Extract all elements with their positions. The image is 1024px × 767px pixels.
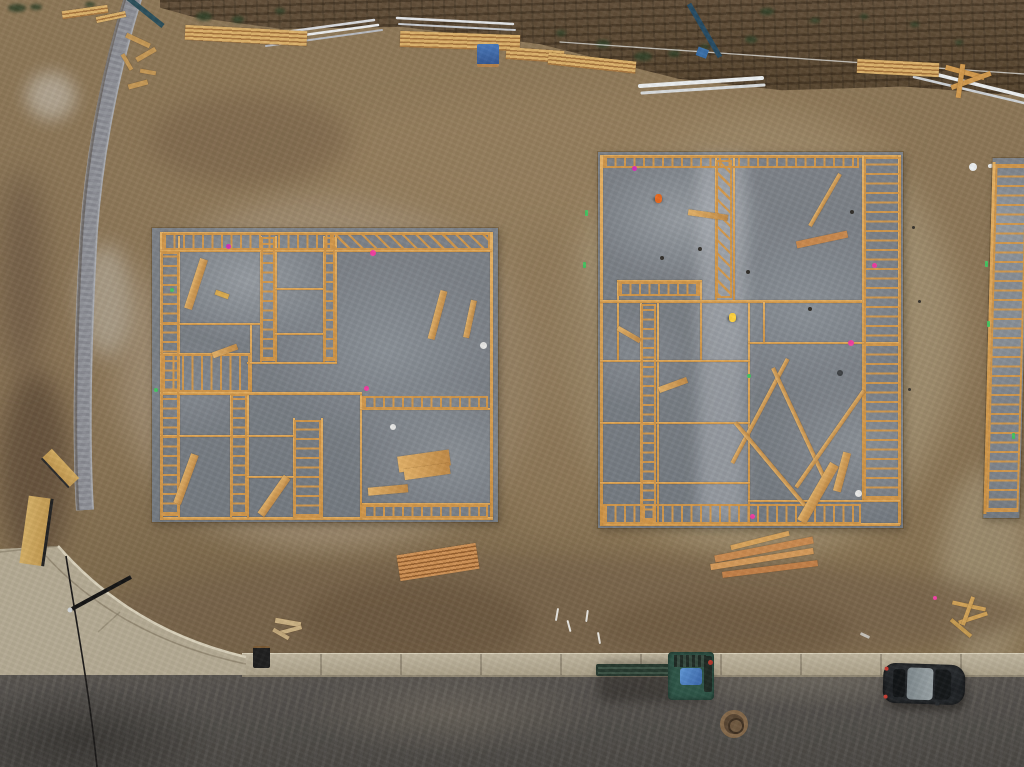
survey-marker [585,610,589,622]
survey-marker [912,226,915,229]
survey-marker [918,300,921,303]
survey-marker [555,608,559,621]
survey-marker [585,210,588,216]
aerial-construction-site-photo [0,0,1024,767]
survey-marker [969,163,977,171]
survey-marker [985,261,988,267]
survey-marker [597,632,601,644]
survey-marker [583,262,586,268]
survey-marker [908,388,911,391]
survey-marker [1012,433,1015,439]
survey-markers [0,0,1024,767]
survey-marker [860,632,870,639]
survey-marker [566,620,571,632]
survey-marker [933,596,937,600]
survey-marker [987,321,990,327]
